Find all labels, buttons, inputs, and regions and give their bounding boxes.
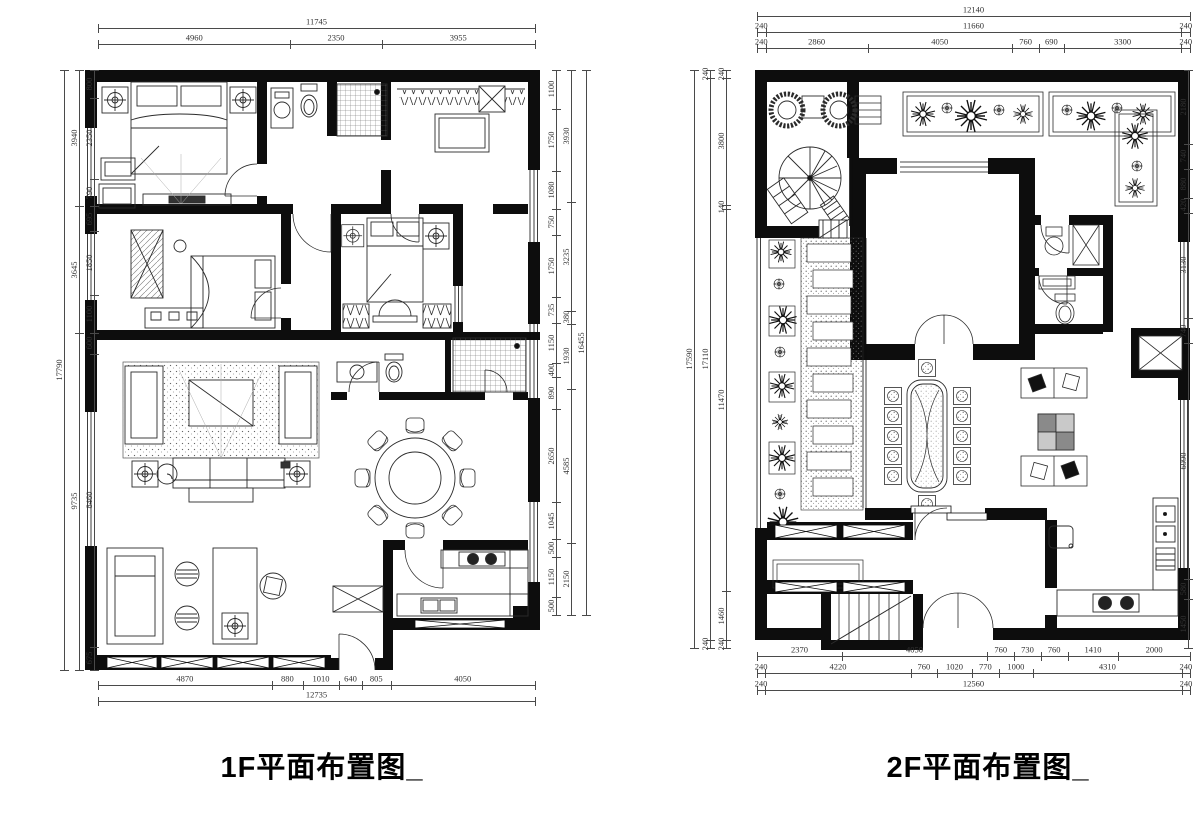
dim-label: 3940	[70, 130, 79, 147]
dim-tick	[552, 209, 561, 210]
dim-tick	[552, 502, 561, 503]
dim-label: 1000	[1007, 663, 1024, 672]
dim-label: 2350	[327, 34, 344, 43]
dim-tick	[90, 231, 99, 232]
dim-label: 740	[1179, 150, 1188, 163]
dim-label: 4050	[931, 38, 948, 47]
dim-tick	[552, 557, 561, 558]
dim-tick	[842, 652, 843, 661]
floor-plan-2f-drawing	[755, 70, 1190, 650]
dim-tick	[272, 681, 273, 690]
dimension-line	[757, 673, 1190, 674]
dim-label: 3930	[562, 128, 571, 145]
dim-label: 760	[994, 646, 1007, 655]
dim-label: 17790	[55, 359, 64, 380]
dim-label: 4050	[906, 646, 923, 655]
dim-label: 3645	[70, 261, 79, 278]
dim-tick	[1184, 70, 1193, 71]
dim-tick	[972, 669, 973, 678]
dim-label: 2860	[808, 38, 825, 47]
dimension-line	[694, 70, 695, 648]
dim-tick	[706, 78, 715, 79]
dim-tick	[567, 389, 576, 390]
dim-tick	[391, 681, 392, 690]
dim-label: 1045	[547, 512, 556, 529]
dim-tick	[1184, 599, 1193, 600]
dim-label: 1150	[547, 335, 556, 352]
dim-label: 4960	[186, 34, 203, 43]
dim-label: 3130	[1179, 257, 1188, 274]
dim-tick	[552, 109, 561, 110]
dim-label: 8460	[85, 492, 94, 509]
dim-tick	[567, 324, 576, 325]
dimension-line	[757, 48, 1190, 49]
dim-tick	[552, 539, 561, 540]
dim-tick	[1033, 669, 1034, 678]
dim-label: 1930	[562, 348, 571, 365]
dim-tick	[1118, 652, 1119, 661]
dim-label: 11745	[306, 18, 327, 27]
dim-tick	[567, 543, 576, 544]
dim-tick	[552, 171, 561, 172]
dim-tick	[567, 70, 576, 71]
dimension-line	[64, 70, 65, 670]
dim-tick	[90, 179, 99, 180]
dim-label: 4050	[454, 675, 471, 684]
dim-label: 1460	[717, 607, 726, 624]
dimension-line	[726, 70, 727, 648]
dim-label: 790	[85, 186, 94, 199]
dim-tick	[1184, 579, 1193, 580]
dim-tick	[1068, 652, 1069, 661]
dim-label: 12140	[963, 6, 984, 15]
dim-label: 140	[717, 201, 726, 214]
dim-tick	[60, 70, 69, 71]
dim-tick	[987, 652, 988, 661]
dim-tick	[75, 206, 84, 207]
dim-tick	[552, 409, 561, 410]
dim-label: 690	[1045, 38, 1058, 47]
dim-tick	[552, 70, 561, 71]
dim-tick	[382, 40, 383, 49]
dim-label: 500	[547, 600, 556, 613]
dim-tick	[722, 209, 731, 210]
dim-label: 2350	[85, 130, 94, 147]
dim-label: 760	[1019, 38, 1032, 47]
dim-label: 805	[370, 675, 383, 684]
dim-tick	[1184, 343, 1193, 344]
dim-tick	[552, 615, 561, 616]
dim-label: 3800	[717, 133, 726, 150]
dim-label: 11660	[963, 22, 984, 31]
dim-tick	[552, 323, 561, 324]
dim-label: 640	[344, 675, 357, 684]
dimension-line	[710, 70, 711, 648]
dimension-line	[757, 690, 1190, 691]
dim-label: 735	[547, 303, 556, 316]
dimension-line	[757, 16, 1190, 17]
dim-label: 695	[85, 212, 94, 225]
floor-plan-1f-drawing	[85, 70, 540, 670]
dim-label: 1750	[547, 257, 556, 274]
dim-label: 1450	[1179, 615, 1188, 632]
dim-label: 880	[1179, 177, 1188, 190]
dim-label: 4585	[562, 457, 571, 474]
dim-label: 1150	[547, 569, 556, 586]
dim-tick	[868, 44, 869, 53]
dim-tick	[98, 40, 99, 49]
dim-tick	[582, 70, 591, 71]
dim-tick	[90, 647, 99, 648]
dim-label: 400	[547, 364, 556, 377]
plan-title-1f: 1F平面布置图_	[221, 744, 424, 786]
dim-tick	[1190, 686, 1191, 695]
dim-label: 6990	[1179, 453, 1188, 470]
dim-tick	[722, 78, 731, 79]
dim-label: 3235	[562, 248, 571, 265]
dim-label: 4870	[176, 675, 193, 684]
dim-tick	[1041, 652, 1042, 661]
dim-tick	[567, 202, 576, 203]
dim-label: 580	[1179, 583, 1188, 596]
dim-tick	[757, 652, 758, 661]
dimension-line	[98, 28, 535, 29]
dim-tick	[98, 681, 99, 690]
dimension-line	[757, 32, 1190, 33]
dim-tick	[60, 670, 69, 671]
dim-tick	[98, 697, 99, 706]
dim-label: 12735	[306, 691, 327, 700]
dimension-line	[98, 44, 535, 45]
dimension-line	[556, 70, 557, 615]
dim-label: 730	[1021, 646, 1034, 655]
dim-tick	[535, 681, 536, 690]
dim-label: 1100	[85, 305, 94, 322]
dim-label: 4310	[1099, 663, 1116, 672]
dim-label: 500	[547, 542, 556, 555]
dim-tick	[567, 615, 576, 616]
shaft	[1139, 336, 1182, 370]
dim-tick	[1039, 44, 1040, 53]
parasol-icon	[779, 147, 841, 209]
dim-tick	[90, 354, 99, 355]
dim-tick	[1190, 44, 1191, 53]
dim-label: 1100	[547, 81, 556, 98]
dim-label: 2180	[1179, 98, 1188, 115]
dim-label: 17590	[685, 348, 694, 369]
dim-tick	[90, 670, 99, 671]
dim-tick	[911, 669, 912, 678]
dim-label: 4220	[830, 663, 847, 672]
dimension-line	[94, 70, 95, 670]
dim-label: 1010	[313, 675, 330, 684]
dimension-line	[98, 701, 535, 702]
dim-tick	[552, 597, 561, 598]
dim-label: 770	[979, 663, 992, 672]
dim-tick	[1184, 144, 1193, 145]
dim-label: 1020	[946, 663, 963, 672]
dim-label: 3300	[1114, 38, 1131, 47]
dim-label: 2000	[1146, 646, 1163, 655]
dim-label: 12560	[963, 680, 984, 689]
dim-label: 16455	[577, 332, 586, 353]
blueprint-canvas: 1174549602350395517790394036459735800235…	[0, 0, 1200, 815]
dim-tick	[765, 669, 766, 678]
dim-label: 420	[1179, 199, 1188, 212]
dim-tick	[75, 670, 84, 671]
dim-label: 1850	[85, 254, 94, 271]
dim-tick	[552, 377, 561, 378]
dim-tick	[75, 333, 84, 334]
dim-label: 17110	[701, 349, 710, 370]
dim-label: 1410	[1085, 646, 1102, 655]
dim-tick	[362, 681, 363, 690]
dim-label: 880	[281, 675, 294, 684]
dim-tick	[90, 295, 99, 296]
dim-tick	[290, 40, 291, 49]
dim-tick	[722, 591, 731, 592]
dim-label: 1750	[547, 131, 556, 148]
dim-tick	[303, 681, 304, 690]
dim-label: 380	[562, 311, 571, 324]
dim-tick	[75, 70, 84, 71]
dim-tick	[1014, 652, 1015, 661]
dim-tick	[1190, 669, 1191, 678]
dimension-line	[586, 70, 587, 615]
dim-label: 9735	[70, 493, 79, 510]
dim-tick	[339, 681, 340, 690]
dim-tick	[552, 297, 561, 298]
dim-tick	[766, 44, 767, 53]
dim-label: 3955	[450, 34, 467, 43]
dimension-line	[79, 70, 80, 670]
dim-label: 600	[85, 337, 94, 350]
dim-label: 2150	[562, 570, 571, 587]
dim-label: 2650	[547, 447, 556, 464]
dim-label: 740	[1179, 324, 1188, 337]
dim-label: 675	[85, 652, 94, 665]
dim-tick	[1184, 169, 1193, 170]
dim-tick	[552, 235, 561, 236]
dim-label: 750	[547, 215, 556, 228]
dim-tick	[999, 669, 1000, 678]
dimension-line	[757, 656, 1190, 657]
dim-tick	[582, 615, 591, 616]
dim-label: 760	[1048, 646, 1061, 655]
dim-label: 890	[547, 387, 556, 400]
dim-label: 800	[85, 77, 94, 90]
dim-tick	[1064, 44, 1065, 53]
dim-tick	[1190, 652, 1191, 661]
dim-tick	[535, 40, 536, 49]
dim-tick	[690, 648, 699, 649]
dim-label: 11470	[717, 390, 726, 411]
dim-label: 1080	[547, 181, 556, 198]
dim-label: 760	[917, 663, 930, 672]
dim-label: 2370	[791, 646, 808, 655]
dim-tick	[1012, 44, 1013, 53]
dim-tick	[535, 697, 536, 706]
dim-tick	[690, 70, 699, 71]
dim-tick	[765, 686, 766, 695]
dim-tick	[90, 70, 99, 71]
dimension-line	[571, 70, 572, 615]
dim-tick	[90, 333, 99, 334]
dim-tick	[937, 669, 938, 678]
dimension-line	[98, 685, 535, 686]
dim-tick	[722, 648, 731, 649]
dim-tick	[1184, 648, 1193, 649]
dim-tick	[535, 24, 536, 33]
dim-tick	[90, 206, 99, 207]
dim-tick	[1184, 318, 1193, 319]
plan-title-2f: 2F平面布置图_	[887, 744, 1090, 786]
dim-tick	[90, 98, 99, 99]
dimension-line	[1188, 70, 1189, 648]
dim-tick	[1184, 213, 1193, 214]
living-room	[123, 362, 319, 502]
dim-tick	[98, 24, 99, 33]
dim-tick	[706, 648, 715, 649]
